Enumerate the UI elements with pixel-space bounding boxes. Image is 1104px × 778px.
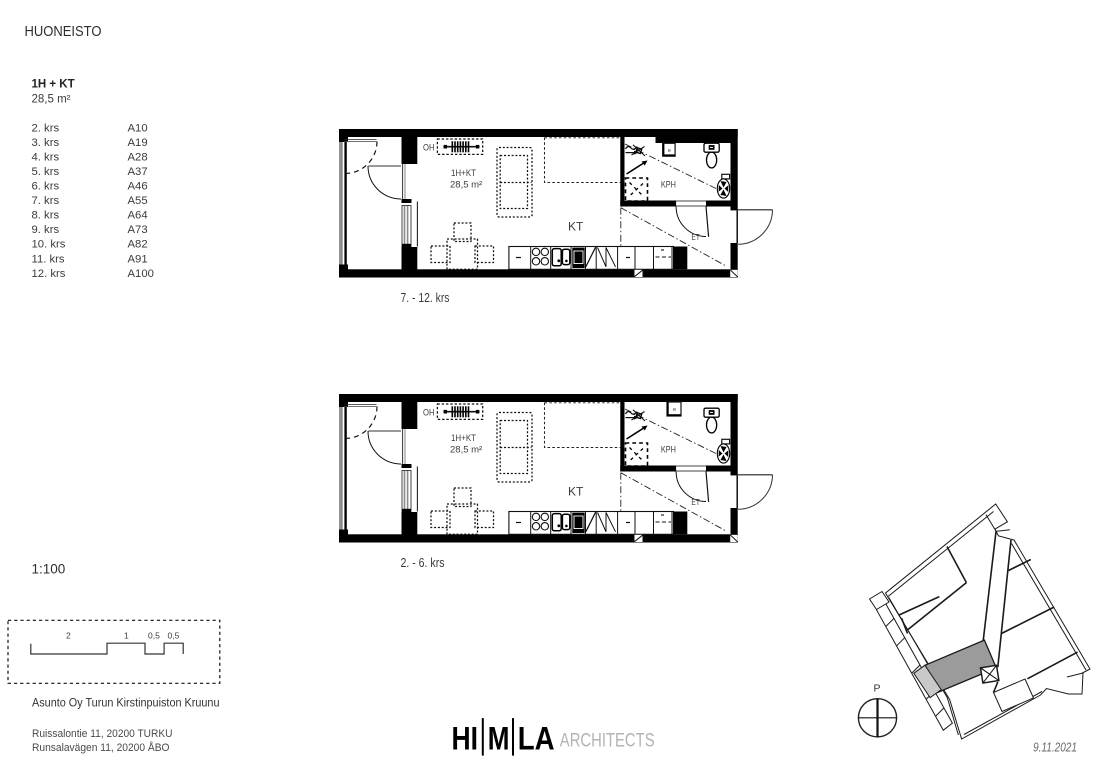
svg-text:P: P (874, 683, 881, 695)
svg-text:Runsalavägen 11, 20200 ÅBO: Runsalavägen 11, 20200 ÅBO (32, 741, 170, 754)
svg-text:7. - 12. krs: 7. - 12. krs (401, 290, 450, 305)
svg-text:1H+KT: 1H+KT (451, 433, 476, 444)
svg-text:ET: ET (691, 233, 700, 242)
svg-text:ARCHITECTS: ARCHITECTS (560, 730, 655, 751)
svg-text:HUONEISTO: HUONEISTO (25, 24, 102, 40)
svg-text:1:100: 1:100 (32, 562, 66, 577)
svg-text:2: 2 (66, 631, 71, 641)
svg-text:Asunto Oy Turun Kirstinpuiston: Asunto Oy Turun Kirstinpuiston Kruunu (32, 698, 220, 710)
svg-text:3. krs: 3. krs (32, 137, 60, 149)
svg-text:KPH: KPH (661, 180, 676, 191)
svg-text:A91: A91 (128, 253, 148, 265)
svg-text:A10: A10 (128, 122, 148, 134)
svg-text:10. krs: 10. krs (32, 239, 66, 251)
svg-text:e: e (668, 148, 671, 154)
svg-text:OH: OH (423, 143, 435, 154)
svg-text:e: e (673, 407, 676, 413)
svg-text:0,5: 0,5 (148, 631, 160, 641)
svg-text:28,5 m²: 28,5 m² (32, 94, 71, 106)
svg-text:11. krs: 11. krs (32, 253, 65, 265)
svg-text:A64: A64 (128, 210, 148, 222)
svg-text:A100: A100 (128, 268, 154, 280)
svg-text:7. krs: 7. krs (32, 195, 60, 207)
svg-text:12. krs: 12. krs (32, 268, 66, 280)
svg-text:2. krs: 2. krs (32, 122, 60, 134)
svg-text:KPH: KPH (661, 445, 676, 456)
svg-text:A82: A82 (128, 239, 148, 251)
svg-text:1H + KT: 1H + KT (32, 79, 75, 91)
svg-text:ET: ET (691, 498, 700, 507)
svg-text:KT: KT (568, 220, 584, 234)
svg-text:A19: A19 (128, 137, 148, 149)
svg-text:A55: A55 (128, 195, 148, 207)
svg-text:KT: KT (568, 485, 584, 499)
svg-text:OH: OH (423, 408, 435, 419)
svg-text:A28: A28 (128, 151, 148, 163)
svg-text:M: M (488, 720, 510, 756)
svg-text:0,5: 0,5 (168, 631, 180, 641)
svg-text:HI: HI (452, 720, 479, 756)
svg-text:A46: A46 (128, 181, 148, 193)
svg-text:5. krs: 5. krs (32, 166, 60, 178)
svg-text:1H+KT: 1H+KT (451, 168, 476, 179)
svg-text:1: 1 (124, 631, 129, 641)
svg-text:9. krs: 9. krs (32, 224, 60, 236)
svg-text:28,5 m²: 28,5 m² (450, 180, 482, 191)
svg-text:Ruissalontie 11, 20200 TURKU: Ruissalontie 11, 20200 TURKU (32, 728, 173, 740)
svg-text:8. krs: 8. krs (32, 210, 60, 222)
svg-text:LA: LA (518, 720, 555, 756)
svg-text:6. krs: 6. krs (32, 181, 60, 193)
svg-text:A37: A37 (128, 166, 148, 178)
svg-text:28,5 m²: 28,5 m² (450, 445, 482, 456)
svg-text:2. - 6. krs: 2. - 6. krs (401, 555, 445, 570)
svg-text:9.11.2021: 9.11.2021 (1033, 741, 1077, 755)
svg-text:4. krs: 4. krs (32, 151, 60, 163)
svg-text:A73: A73 (128, 224, 148, 236)
